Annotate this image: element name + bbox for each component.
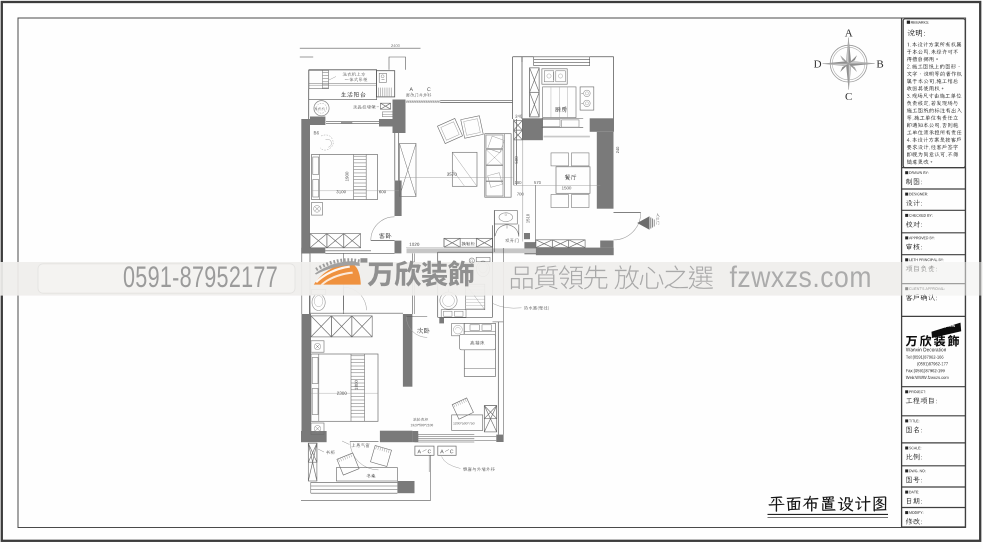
svg-text:D: D	[814, 59, 822, 71]
svg-text:0591-87952177: 0591-87952177	[123, 259, 278, 293]
svg-text:A: A	[845, 28, 853, 40]
svg-text:C: C	[845, 91, 852, 103]
svg-text:B: B	[876, 59, 883, 71]
svg-text:fzwxzs.com: fzwxzs.com	[730, 261, 873, 294]
